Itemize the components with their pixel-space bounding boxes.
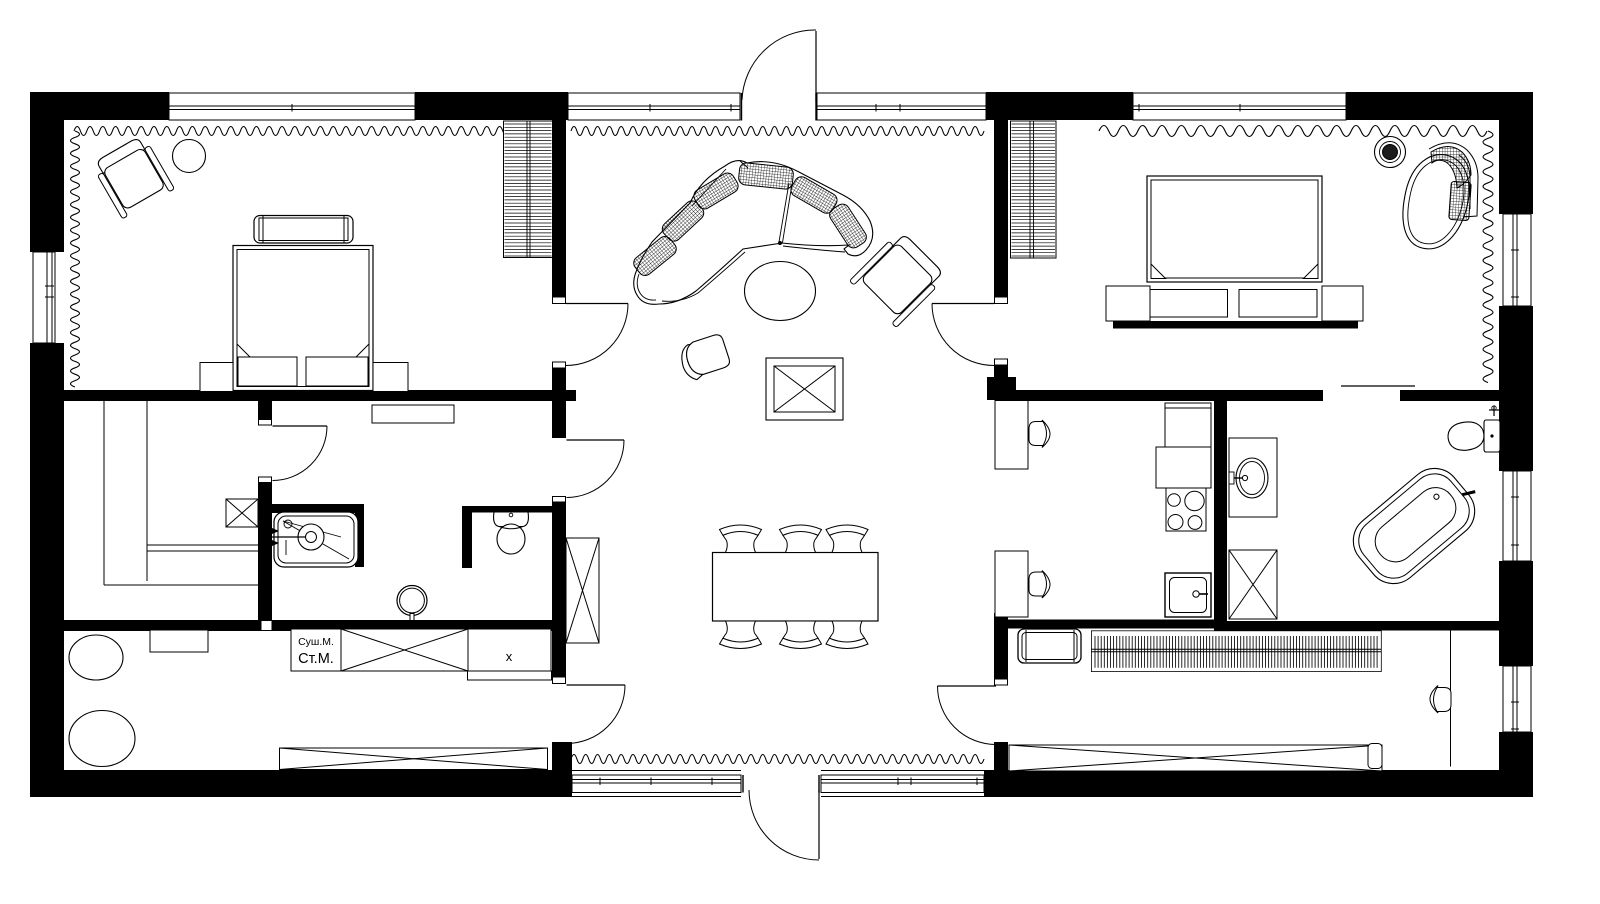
svg-text:Суш.М.: Суш.М. bbox=[298, 636, 334, 648]
svg-text:Ст.М.: Ст.М. bbox=[298, 651, 334, 667]
svg-text:x: x bbox=[506, 649, 513, 664]
